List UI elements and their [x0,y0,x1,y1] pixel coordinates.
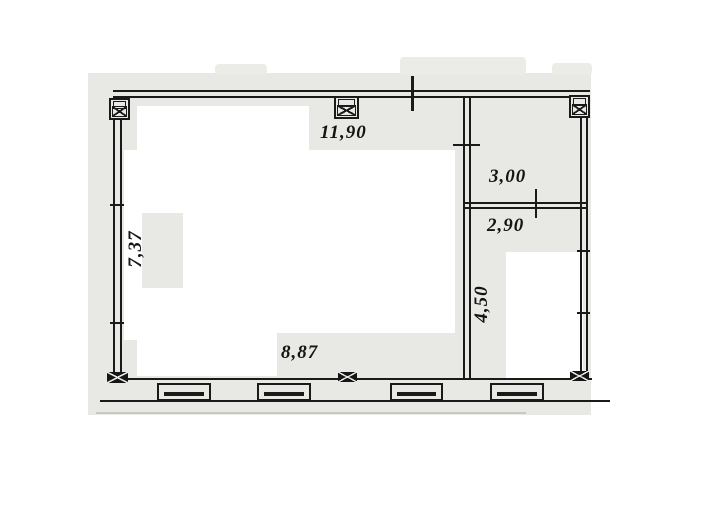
dim-right-room-height: 4,50 [472,282,492,326]
wall-top-outer [113,90,590,92]
column-icon [107,372,128,383]
wall-interior-vertical [463,98,465,378]
opening-tick [535,189,537,218]
window-glass-line [164,392,204,396]
dim-left-wall-height: 7,37 [126,227,146,271]
wall-joint-tick [110,204,124,206]
column-icon [570,371,589,381]
wall-joint-tick [577,250,590,252]
wall-right-outer [586,113,588,378]
wall-interior-vertical [469,98,471,378]
wall-joint-tick [110,322,124,324]
column-x-icon [112,106,127,117]
opening-tick [411,76,414,111]
whiteout-patch [137,288,277,376]
window-segment [490,383,544,401]
wall-left-inner [120,98,122,378]
window-segment [257,383,311,401]
column-icon [109,98,130,120]
dim-bottom-width: 8,87 [281,343,318,363]
dim-top-width: 11,90 [320,123,367,143]
window-segment [390,383,443,401]
wall-interior-horizontal [465,202,587,204]
wall-joint-tick [577,312,590,314]
dim-lower-room-width: 2,90 [487,216,524,236]
floorplan-canvas: 11,90 3,00 2,90 4,50 7,37 8,87 [0,0,718,511]
column-icon [569,95,590,118]
column-icon [334,96,359,119]
wall-right-inner [580,113,582,378]
window-glass-line [264,392,304,396]
column-x-icon [337,105,356,116]
wall-interior-horizontal [465,207,587,209]
scan-smudge [400,57,526,75]
window-glass-line [397,392,436,396]
whiteout-patch [506,252,583,378]
scan-smudge [552,63,592,75]
scan-edge-line [96,412,526,414]
opening-tick [453,144,480,146]
scan-smudge [215,64,267,75]
window-segment [157,383,211,401]
wall-left-outer [113,98,115,378]
dim-right-room-width: 3,00 [489,167,526,187]
column-icon [338,372,357,382]
window-glass-line [497,392,537,396]
column-x-icon [572,104,587,115]
